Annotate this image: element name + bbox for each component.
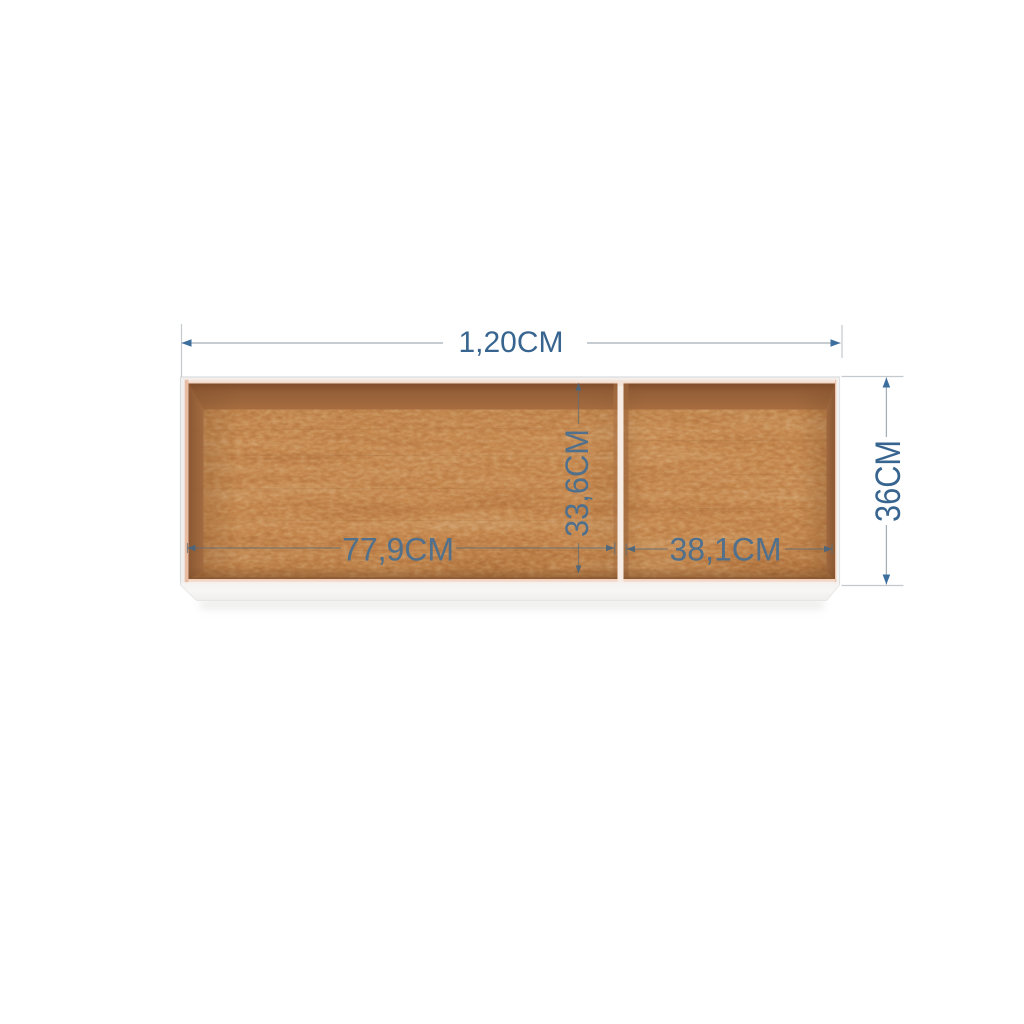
svg-text:33,6CM: 33,6CM — [559, 429, 595, 537]
svg-text:38,1CM: 38,1CM — [669, 532, 781, 568]
svg-text:1,20CM: 1,20CM — [458, 326, 563, 359]
svg-text:36CM: 36CM — [869, 440, 908, 522]
svg-text:77,9CM: 77,9CM — [342, 532, 454, 568]
